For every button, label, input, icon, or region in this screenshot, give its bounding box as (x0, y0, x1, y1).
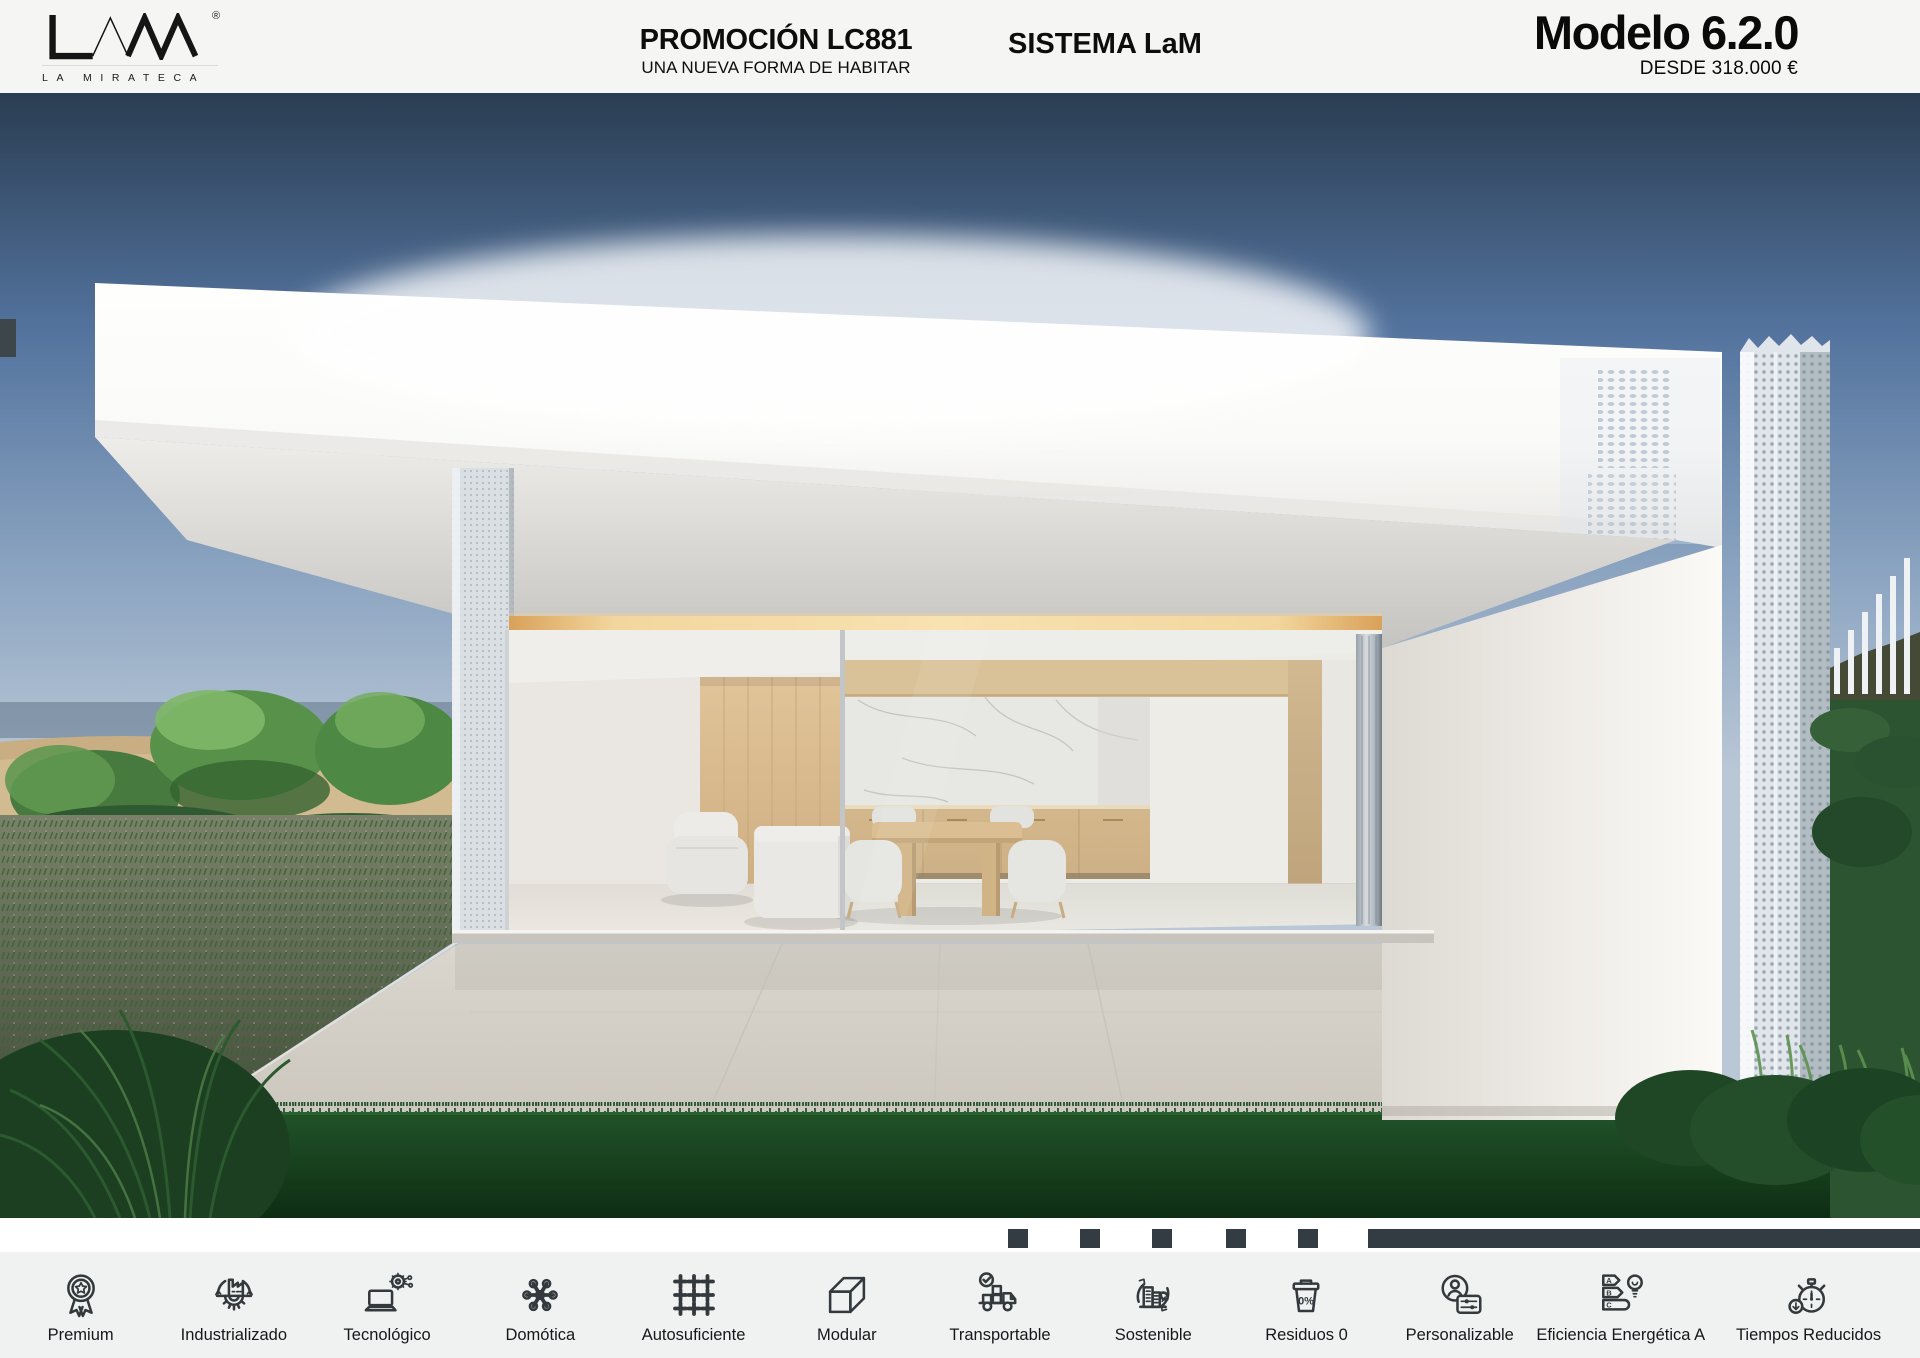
interior (505, 630, 1382, 940)
feature-label: Industrializado (181, 1326, 287, 1345)
svg-text:B: B (1606, 1288, 1612, 1297)
promotion-title: PROMOCIÓN LC881 (606, 25, 946, 57)
carousel-square[interactable] (1152, 1229, 1172, 1248)
hero-illustration (0, 93, 1920, 1218)
feature-label: Autosuficiente (642, 1326, 746, 1345)
feature-sostenible: Sostenible (1077, 1266, 1230, 1345)
model-block: Modelo 6.2.0 DESDE 318.000 € (1534, 8, 1798, 80)
carousel-active-bar (1368, 1229, 1920, 1248)
promotion-subtitle: UNA NUEVA FORMA DE HABITAR (606, 58, 946, 78)
feature-label: Personalizable (1406, 1326, 1514, 1345)
feature-eficiencia-energetica: A B C Eficiencia Energética A (1536, 1266, 1705, 1345)
feature-label: Modular (817, 1326, 877, 1345)
perforated-screen-left (452, 468, 514, 934)
feature-label: Sostenible (1115, 1326, 1192, 1345)
factory-gear-icon (207, 1268, 261, 1322)
svg-text:A: A (1606, 1276, 1612, 1285)
system-title: SISTEMA LaM (1008, 28, 1202, 61)
feature-autosuficiente: Autosuficiente (617, 1266, 770, 1345)
hero-render (0, 93, 1920, 1218)
feature-label: Domótica (505, 1326, 575, 1345)
registered-mark: ® (212, 10, 220, 22)
truck-check-icon (973, 1268, 1027, 1322)
laptop-network-icon (360, 1268, 414, 1322)
feature-personalizable: Personalizable (1383, 1266, 1536, 1345)
carousel-square[interactable] (1080, 1229, 1100, 1248)
smart-hub-icon (513, 1268, 567, 1322)
stopwatch-icon (1782, 1268, 1836, 1322)
model-name: Modelo 6.2.0 (1534, 8, 1798, 57)
model-price: DESDE 318.000 € (1534, 58, 1798, 80)
svg-text:0%: 0% (1299, 1295, 1315, 1307)
zero-waste-bin-icon: 0% (1279, 1268, 1333, 1322)
header: ® LA MIRATECA PROMOCIÓN LC881 UNA NUEVA … (0, 0, 1920, 93)
feature-tecnologico: Tecnológico (310, 1266, 463, 1345)
feature-residuos-0: 0% Residuos 0 (1230, 1266, 1383, 1345)
brand-tagline: LA MIRATECA (42, 65, 218, 84)
promotion-block: PROMOCIÓN LC881 UNA NUEVA FORMA DE HABIT… (606, 25, 946, 78)
feature-label: Eficiencia Energética A (1536, 1326, 1705, 1345)
carousel-square[interactable] (1008, 1229, 1028, 1248)
feature-tiempos-reducidos: Tiempos Reducidos (1705, 1266, 1912, 1345)
brand-logo[interactable]: ® LA MIRATECA (40, 10, 226, 86)
carousel-square[interactable] (1226, 1229, 1246, 1248)
user-sliders-icon (1433, 1268, 1487, 1322)
award-rosette-icon (54, 1268, 108, 1322)
lam-logo-icon (42, 13, 210, 60)
feature-industrializado: Industrializado (157, 1266, 310, 1345)
feature-transportable: Transportable (923, 1266, 1076, 1345)
feature-label: Residuos 0 (1265, 1326, 1348, 1345)
feature-premium: Premium (4, 1266, 157, 1345)
feature-label: Premium (48, 1326, 114, 1345)
eco-building-icon (1126, 1268, 1180, 1322)
left-edge-tab (0, 319, 16, 357)
module-block-icon (820, 1268, 874, 1322)
energy-rating-icon: A B C (1594, 1268, 1648, 1322)
feature-domotica: Domótica (464, 1266, 617, 1345)
feature-label: Tecnológico (344, 1326, 431, 1345)
feature-modular: Modular (770, 1266, 923, 1345)
carousel-indicator (0, 1218, 1920, 1252)
carousel-square[interactable] (1298, 1229, 1318, 1248)
plus-grid-icon (667, 1268, 721, 1322)
feature-label: Tiempos Reducidos (1736, 1326, 1881, 1345)
feature-label: Transportable (949, 1326, 1050, 1345)
features-bar: Premium Industrializado Tecnológico (0, 1252, 1920, 1358)
svg-text:C: C (1606, 1300, 1612, 1309)
